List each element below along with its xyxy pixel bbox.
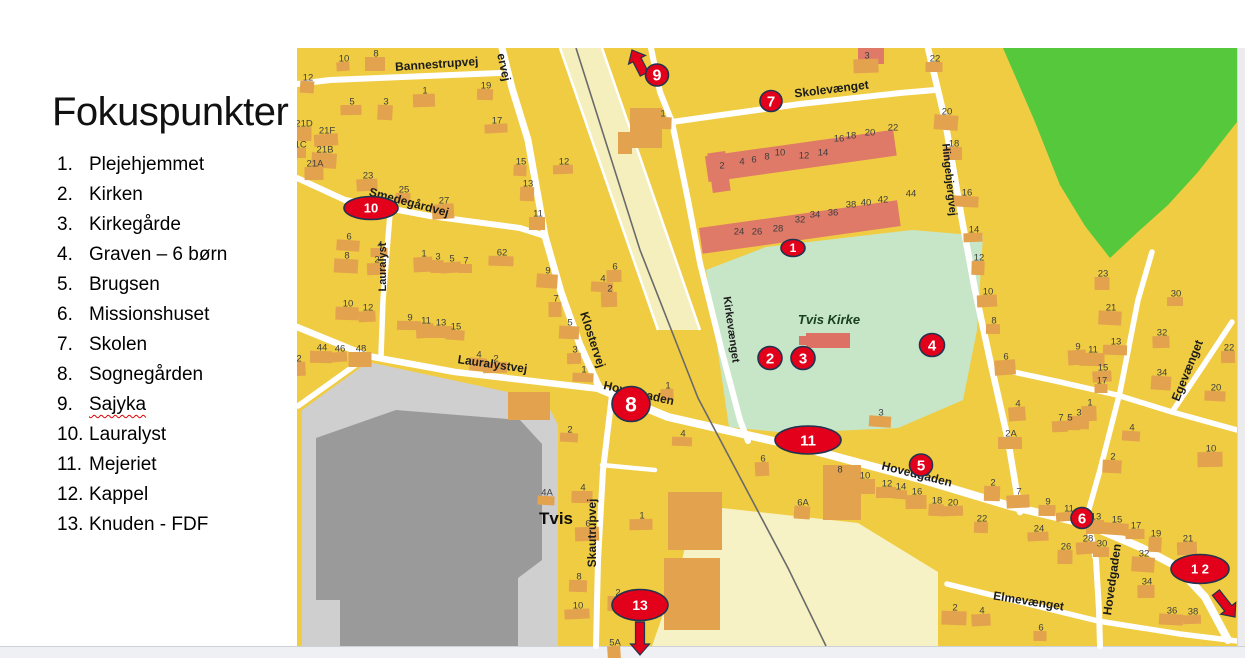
house-number: 5A [609,638,621,649]
map: BannestrupvejervejSmedegårdvejLauralystL… [297,48,1237,646]
item-label: Brugsen [89,274,160,296]
house-number: 10 [983,287,994,298]
item-label: Plejehjemmet [89,154,204,176]
house-number: 28 [773,224,784,235]
item-number: 4. [57,244,89,266]
house-number: 20 [1211,383,1222,394]
house-number: 12 [799,151,810,162]
focus-list-item: 3.Kirkegårde [57,210,227,240]
house-number: 8 [344,251,349,262]
item-number: 6. [57,304,89,326]
house-number: 4 [377,240,382,251]
bottom-bar [0,646,1245,658]
item-number: 10. [57,424,89,446]
focus-list-item: 11.Mejeriet [57,450,227,480]
house-number: 36 [1167,606,1178,617]
item-label: Missionshuset [89,304,209,326]
item-label: Sognegården [89,364,203,386]
house-number: 15 [451,322,462,333]
item-label: Kappel [89,484,148,506]
house-number: 1 [660,109,665,120]
house-number: 4 [580,483,585,494]
house-number: 44 [906,189,917,200]
house-number: 25 [399,185,410,196]
house-number: 40 [861,198,872,209]
house-number: 12 [882,479,893,490]
item-number: 12. [57,484,89,506]
house-number: 8 [373,49,378,60]
house-number: 2 [374,255,379,266]
house-number: 6 [760,454,765,465]
house-number: 7 [553,294,558,305]
house-number: 1 [422,86,427,97]
house-number: 4 [1129,423,1134,434]
house-number: 20 [948,498,959,509]
house-number: 19 [1151,529,1162,540]
house-number: 11 [1088,345,1098,356]
house-number: 16 [834,134,845,145]
map-marker-8-label: 8 [625,393,637,416]
house-number: 30 [1171,289,1182,300]
map-svg: BannestrupvejervejSmedegårdvejLauralystL… [297,48,1237,646]
house-number: 34 [810,210,821,221]
map-marker-5-label: 5 [917,457,925,474]
house-number: 5 [567,318,572,329]
focus-list-item: 8.Sognegården [57,360,227,390]
focus-list-item: 6.Missionshuset [57,300,227,330]
house-number: 12 [303,73,314,84]
house-number: 2 [952,603,957,614]
house-number: 42 [878,195,889,206]
house-number: 3 [864,51,869,62]
house-number: 6 [612,262,617,273]
item-label: Mejeriet [89,454,157,476]
town-label: Tvis [539,509,573,528]
house-number: 4 [739,157,744,168]
house-number: 5 [349,97,354,108]
house-number: 22 [977,514,988,525]
church-building [799,336,808,345]
house-number: 17 [1131,521,1142,532]
house-number: 2 [990,478,995,489]
house-number: 8 [576,572,581,583]
house-number: 23 [1098,269,1109,280]
house-number: 34 [1142,577,1153,588]
house-number: 4 [979,606,984,617]
house-number: 44 [317,343,328,354]
house-number: 1 [1087,398,1092,409]
building [664,558,720,630]
house-number: 20 [865,128,876,139]
house-number: 22 [888,123,899,134]
house-number: 7 [1058,413,1063,424]
focus-list-item: 9.Sajyka [57,390,227,420]
item-number: 8. [57,364,89,386]
house-number: 13 [1111,337,1122,348]
item-label: Kirken [89,184,143,206]
house-number: 4 [600,274,605,285]
house-number: 24 [734,227,745,238]
house-number: 4 [680,429,685,440]
house-number: 8 [991,316,996,327]
item-label: Sajyka [89,394,146,416]
map-marker-6-label: 6 [1078,510,1086,527]
house-number: 12 [363,303,374,314]
house-number: 2 [1110,452,1115,463]
house-number: 2 [296,354,301,365]
house-number: 10 [860,471,871,482]
house-number: 9 [1045,497,1050,508]
house-number: 46 [335,344,346,355]
house-number: 3 [878,408,883,419]
focus-list-item: 10.Lauralyst [57,420,227,450]
house-number: 8 [837,465,842,476]
house-number: 10 [1206,444,1217,455]
house-number: 9 [545,266,550,277]
house-number: 19 [481,81,492,92]
house-number: 14 [969,225,980,236]
focus-list-item: 13.Knuden - FDF [57,510,227,540]
item-label: Kirkegårde [89,214,181,236]
house-number: 34 [1157,368,1168,379]
item-number: 9. [57,394,89,416]
house-number: 21A [307,159,325,170]
house-number: 11 [533,209,543,220]
house-number: 2 [493,354,498,365]
house-number: 15 [516,157,527,168]
house-number: 3 [383,97,388,108]
house-number: 11 [421,316,431,327]
house-number: 16 [962,188,973,199]
item-number: 2. [57,184,89,206]
map-marker-11-label: 11 [800,432,816,449]
house-number: 36 [828,208,839,219]
house-number: 22 [930,54,941,65]
house-number: 10 [339,54,350,65]
house-number: 21B [317,145,334,156]
house-number: 6 [751,155,756,166]
house-number: 13 [523,179,534,190]
house-number: 3 [572,345,577,356]
house-number: 8 [764,152,769,163]
house-number: 2A [1005,429,1017,440]
house-number: 1 [639,511,644,522]
house-number: 48 [356,344,367,355]
house-number: 62 [497,248,508,259]
pale-district [868,560,938,646]
house-number: 6A [797,498,809,509]
item-label: Skolen [89,334,147,356]
house-number: 21 [1183,534,1194,545]
house-number: 21C [289,140,307,151]
church-building [806,333,850,348]
map-marker-4-label: 4 [928,337,937,354]
house-number: 3 [435,252,440,263]
map-marker-13-label: 13 [632,597,648,613]
school-building [618,132,632,154]
focus-list-item: 2.Kirken [57,180,227,210]
house-number: 18 [846,131,857,142]
house-number: 21F [319,126,336,137]
house-number: 6 [346,232,351,243]
house-number: 21D [295,119,313,130]
map-marker-9-label: 9 [653,68,662,85]
right-scrollbar[interactable] [1237,48,1245,657]
house-number: 6 [585,519,590,530]
focus-list-item: 7.Skolen [57,330,227,360]
map-marker-10-label: 10 [364,201,378,216]
item-number: 7. [57,334,89,356]
house-number: 22 [1224,343,1235,354]
house-number: 5 [449,254,454,265]
house-number: 4 [1015,399,1020,410]
focus-list-item: 1.Plejehjemmet [57,150,227,180]
house-number: 32 [1139,549,1150,560]
house-number: 26 [752,227,763,238]
house-number: 7 [463,256,468,267]
house-number: 1 [421,249,426,260]
factory-building [316,410,542,646]
church-label: Tvis Kirke [798,312,860,327]
house-number: 15 [1112,515,1123,526]
item-number: 1. [57,154,89,176]
house-number: 20 [942,107,953,118]
focus-list-item: 4.Graven – 6 børn [57,240,227,270]
house-number: 18 [949,139,960,150]
house-number: 12 [559,157,570,168]
house-number: 30 [1097,539,1108,550]
house-number: 10 [775,148,786,159]
churchyard-area [706,230,983,433]
house-number: 12 [974,253,985,264]
house-number: 28 [1083,534,1094,545]
item-label: Lauralyst [89,424,166,446]
building [668,492,722,550]
house-number: 27 [439,196,450,207]
item-number: 11. [57,454,89,476]
house-number: 32 [795,215,806,226]
house-number: 1 [581,365,586,376]
house-number: 17 [492,116,503,127]
house-number: 6 [1003,352,1008,363]
house-number: 7 [1016,487,1021,498]
house-number: 1 [665,381,670,392]
map-marker-7-label: 7 [767,93,775,110]
house-number: 18 [932,496,943,507]
map-marker-3-label: 3 [799,350,807,367]
house-number: 38 [846,200,857,211]
item-number: 13. [57,514,89,536]
house-number: 10 [573,601,584,612]
house-number: 21 [1106,303,1117,314]
house-number: 14 [896,482,907,493]
house-number: 14 [818,148,829,159]
focus-list-item: 5.Brugsen [57,270,227,300]
house-number: 4A [541,488,553,499]
map-marker-1-label: 1 [790,241,797,255]
house-number: 13 [436,318,447,329]
house-number: 5 [1067,413,1072,424]
building [508,392,550,420]
page-title: Fokuspunkter [52,92,288,132]
map-marker-12-label: 1 2 [1191,562,1209,577]
house-number: 15 [1098,363,1109,374]
house-number: 16 [912,487,923,498]
house-number: 6 [1038,623,1043,634]
map-marker-2-label: 2 [766,350,774,367]
house-number: 9 [1075,342,1080,353]
house-number: 2 [719,161,724,172]
house-number: 4 [476,350,481,361]
focus-list-item: 12.Kappel [57,480,227,510]
house-number: 2 [567,425,572,436]
house-number: 3 [1076,408,1081,419]
house-number: 26 [1061,542,1072,553]
street-label: Skautrupvej [585,499,599,568]
house-number: 10 [343,299,354,310]
item-label: Knuden - FDF [89,514,208,536]
house-number: 23 [363,171,374,182]
item-number: 3. [57,214,89,236]
house-number: 2 [607,284,612,295]
house-number: 17 [1097,376,1108,387]
house-number: 24 [1034,524,1045,535]
house-number: 32 [1157,328,1168,339]
item-number: 5. [57,274,89,296]
house-number: 38 [1188,607,1199,618]
item-label: Graven – 6 børn [89,244,227,266]
focus-list: 1.Plejehjemmet 2.Kirken 3.Kirkegårde 4.G… [57,150,227,540]
house-number: 9 [407,313,412,324]
